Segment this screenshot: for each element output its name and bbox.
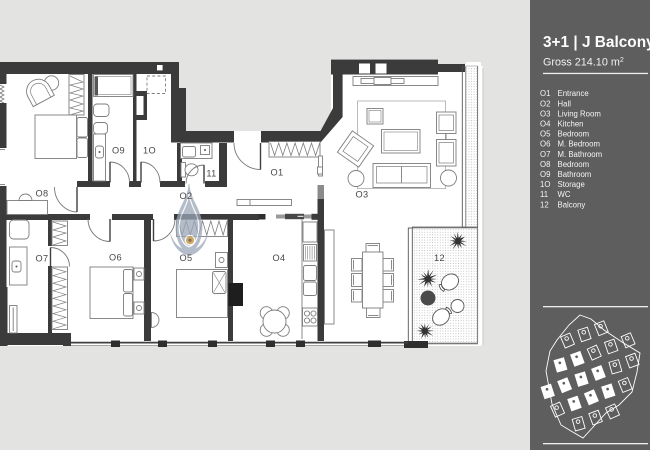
svg-text:O3: O3	[540, 109, 550, 118]
svg-text:M. Bedroom: M. Bedroom	[558, 140, 600, 149]
svg-text:WC: WC	[558, 190, 571, 199]
svg-text:O9: O9	[540, 170, 550, 179]
svg-text:3+1 | J Balcony: 3+1 | J Balcony	[543, 34, 650, 51]
svg-text:O6: O6	[540, 140, 550, 149]
svg-text:O5: O5	[540, 130, 551, 139]
svg-text:12: 12	[434, 253, 445, 263]
svg-text:Bedroom: Bedroom	[558, 160, 590, 169]
svg-text:O8: O8	[35, 189, 48, 199]
svg-text:O3: O3	[355, 190, 368, 200]
svg-text:O5: O5	[179, 253, 192, 263]
svg-text:O1: O1	[270, 168, 283, 178]
svg-text:Gross 214.10 m2: Gross 214.10 m2	[543, 57, 624, 69]
svg-text:O8: O8	[540, 160, 550, 169]
svg-text:1O: 1O	[143, 146, 156, 156]
svg-text:Entrance: Entrance	[558, 89, 589, 98]
svg-text:O6: O6	[109, 253, 122, 263]
svg-text:Hall: Hall	[558, 99, 572, 108]
svg-text:O7: O7	[540, 150, 550, 159]
svg-text:Bathroom: Bathroom	[558, 170, 592, 179]
svg-text:Balcony: Balcony	[558, 200, 586, 209]
svg-text:O9: O9	[112, 146, 125, 156]
svg-text:12: 12	[540, 200, 549, 209]
svg-text:Storage: Storage	[558, 180, 585, 189]
svg-text:11: 11	[206, 169, 216, 179]
svg-text:Kitchen: Kitchen	[558, 120, 584, 129]
svg-text:Living Room: Living Room	[558, 109, 601, 118]
svg-text:O4: O4	[272, 253, 285, 263]
svg-text:O4: O4	[540, 120, 551, 129]
svg-text:O1: O1	[540, 89, 550, 98]
svg-text:M. Bathroom: M. Bathroom	[558, 150, 603, 159]
svg-text:11: 11	[540, 190, 548, 199]
svg-text:Bedroom: Bedroom	[558, 130, 590, 139]
svg-text:O2: O2	[179, 191, 192, 201]
svg-text:O7: O7	[35, 254, 48, 264]
svg-text:O2: O2	[540, 99, 550, 108]
svg-text:1O: 1O	[540, 180, 550, 189]
